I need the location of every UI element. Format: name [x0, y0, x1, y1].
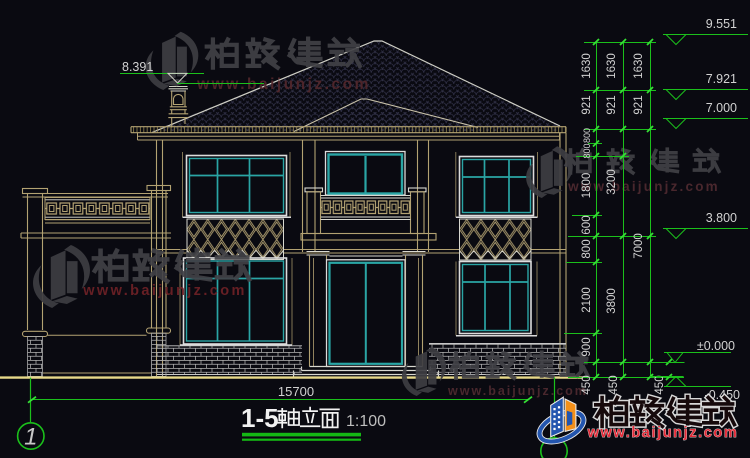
svg-text:921: 921 [581, 95, 593, 114]
svg-text:800: 800 [581, 239, 593, 258]
svg-text:8.391: 8.391 [122, 60, 153, 74]
svg-text:9.551: 9.551 [706, 17, 737, 31]
svg-text:921: 921 [633, 95, 645, 114]
svg-text:800: 800 [582, 128, 592, 143]
svg-text:450: 450 [581, 375, 593, 394]
svg-text:7000: 7000 [633, 233, 645, 259]
svg-text:1800: 1800 [581, 173, 593, 199]
svg-text:7.921: 7.921 [706, 72, 737, 86]
svg-text:921: 921 [606, 95, 618, 114]
svg-text:1: 1 [24, 424, 37, 451]
svg-text:1:100: 1:100 [346, 413, 386, 430]
svg-text:1630: 1630 [633, 53, 645, 79]
svg-text:800: 800 [582, 143, 592, 158]
svg-text:www.baijunjz.com: www.baijunjz.com [196, 76, 371, 93]
svg-text:1-5: 1-5 [241, 403, 279, 433]
svg-text:3200: 3200 [606, 169, 618, 195]
svg-text:www.baijunjz.com: www.baijunjz.com [82, 283, 247, 299]
svg-text:15700: 15700 [278, 384, 314, 399]
svg-text:450: 450 [608, 375, 620, 394]
svg-text:900: 900 [581, 337, 593, 356]
svg-text:1630: 1630 [581, 53, 593, 79]
svg-text:450: 450 [654, 375, 666, 394]
svg-text:3.800: 3.800 [706, 211, 737, 225]
svg-text:www.baijunjz.com: www.baijunjz.com [447, 384, 588, 398]
svg-text:7.000: 7.000 [706, 101, 737, 115]
svg-text:±0.000: ±0.000 [697, 339, 735, 353]
svg-text:2100: 2100 [581, 287, 593, 313]
svg-text:600: 600 [581, 215, 593, 234]
svg-text:www.baijunjz.com: www.baijunjz.com [587, 425, 739, 441]
svg-text:1630: 1630 [606, 53, 618, 79]
svg-text:3800: 3800 [606, 288, 618, 314]
